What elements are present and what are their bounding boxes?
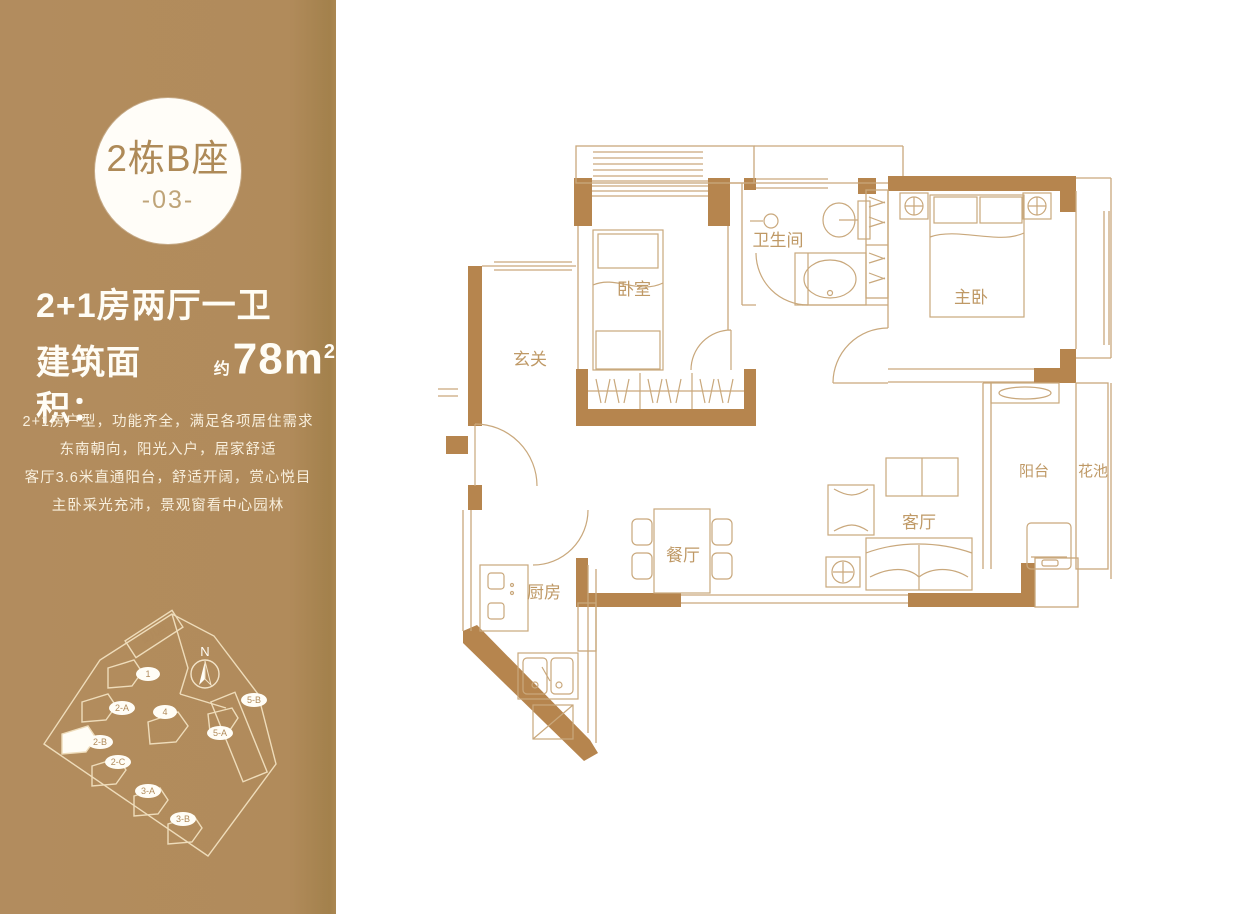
description: 2+1房户型，功能齐全，满足各项居住需求 东南朝向，阳光入户，居家舒适 客厅3.… <box>0 408 336 520</box>
bench-icon <box>991 383 1059 403</box>
entry-window <box>482 262 576 270</box>
kitchen-door <box>533 510 588 565</box>
shower-icon <box>750 214 778 228</box>
room-label-balcony: 阳台 <box>1019 463 1049 480</box>
area-superscript: 2 <box>324 341 336 363</box>
room-label-living: 客厅 <box>902 513 936 532</box>
site-label-4: 4 <box>153 705 177 719</box>
area-value: 78m2 <box>233 329 336 383</box>
stove-icon <box>480 565 528 631</box>
unit-number: -03- <box>142 186 194 215</box>
room-label-kitchen: 厨房 <box>527 583 561 602</box>
svg-text:5-B: 5-B <box>247 695 261 705</box>
site-plan: 幼儿园 1 2-A 2-B 2-C 3-A 3-B 4 5-A 5-B N <box>30 598 306 884</box>
bed-icon <box>593 230 663 370</box>
description-line: 2+1房户型，功能齐全，满足各项居住需求 <box>0 408 336 436</box>
site-road <box>180 694 226 708</box>
description-line: 东南朝向，阳光入户，居家舒适 <box>0 436 336 464</box>
building-name: 2栋B座 <box>106 128 229 182</box>
unit-badge: 2栋B座 -03- <box>95 98 241 244</box>
closet-icon <box>869 197 885 283</box>
toilet-icon <box>823 201 870 239</box>
bathroom-door <box>756 253 808 305</box>
floorplan-poster: 2栋B座 -03- 2+1房两厅一卫 建筑面积： 约 78m2 2+1房户型，功… <box>0 0 1240 914</box>
room-label-bedroom: 卧室 <box>617 280 651 299</box>
bedroom-door <box>691 330 731 370</box>
room-label-flowerbed: 花池 <box>1078 463 1108 480</box>
site-label-3a: 3-A <box>135 784 161 798</box>
svg-text:4: 4 <box>162 707 167 717</box>
site-label-1: 1 <box>136 667 160 681</box>
sidebar: 2栋B座 -03- 2+1房两厅一卫 建筑面积： 约 78m2 2+1房户型，功… <box>0 0 336 914</box>
room-label-dining: 餐厅 <box>666 546 700 565</box>
site-label-2b: 2-B <box>87 735 113 749</box>
north-arrow-icon: N <box>191 644 219 688</box>
svg-text:1: 1 <box>145 669 150 679</box>
louver-lines <box>593 152 703 176</box>
floor-plan: 玄关 卧室 卫生间 主卧 餐厅 客厅 厨房 阳台 花池 <box>438 133 1153 783</box>
room-label-entry: 玄关 <box>513 350 547 369</box>
site-road <box>172 614 188 694</box>
armchair-icon <box>828 485 874 535</box>
site-label-2a: 2-A <box>109 701 135 715</box>
layout-title: 2+1房两厅一卫 <box>36 283 336 329</box>
svg-text:3-B: 3-B <box>176 814 190 824</box>
dining-window <box>681 595 908 603</box>
washing-machine-icon <box>1027 523 1071 569</box>
area-approx: 约 <box>214 347 231 393</box>
balcony-sliding-door <box>983 383 991 569</box>
coffee-table-icon <box>886 458 958 496</box>
description-line: 客厅3.6米直通阳台，舒适开阔，赏心悦目 <box>0 464 336 492</box>
plant-icon <box>826 557 860 587</box>
svg-text:5-A: 5-A <box>213 728 227 738</box>
sofa-icon <box>866 538 972 590</box>
site-label-5b: 5-B <box>241 693 267 707</box>
sink-icon <box>795 253 866 305</box>
svg-text:N: N <box>200 644 209 659</box>
room-label-master: 主卧 <box>954 288 988 307</box>
site-label-3b: 3-B <box>170 812 196 826</box>
entry-door <box>475 424 537 486</box>
description-line: 主卧采光充沛，景观窗看中心园林 <box>0 492 336 520</box>
svg-text:2-B: 2-B <box>93 737 107 747</box>
site-label-2c: 2-C <box>105 755 131 769</box>
svg-text:3-A: 3-A <box>141 786 155 796</box>
room-label-bathroom: 卫生间 <box>753 231 804 250</box>
wardrobe-icon <box>588 373 744 409</box>
master-bedroom-door <box>833 328 888 383</box>
svg-text:2-C: 2-C <box>111 757 126 767</box>
svg-text:2-A: 2-A <box>115 703 129 713</box>
walls <box>446 176 1076 761</box>
site-label-5a: 5-A <box>207 726 233 740</box>
